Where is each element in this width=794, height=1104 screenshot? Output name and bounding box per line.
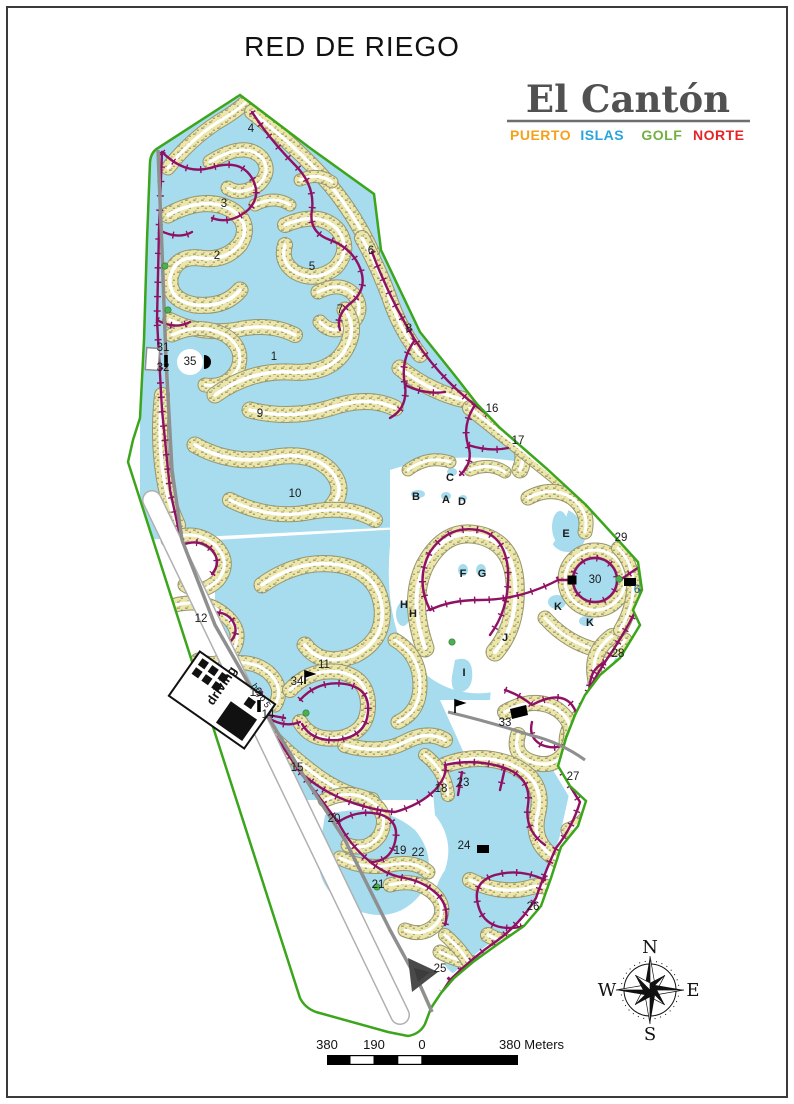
logo-subwords: PUERTOISLASGOLFNORTE <box>510 127 745 143</box>
map-label-F: F <box>460 568 467 580</box>
map-label-3: 3 <box>221 198 227 210</box>
green-dot-marker <box>616 576 622 582</box>
map-label-10: 10 <box>289 488 302 500</box>
map-label-4: 4 <box>248 123 255 135</box>
map-label-27: 27 <box>567 771 580 783</box>
map-label-9: 9 <box>257 408 263 420</box>
map-label-26: 26 <box>527 901 540 913</box>
scale-190: 190 <box>363 1037 385 1052</box>
map-label-12: 12 <box>195 613 208 625</box>
map-label-K: K <box>586 617 594 629</box>
compass-n: N <box>642 937 658 958</box>
map-label-25: 25 <box>434 963 447 975</box>
logo-name: El Cantón <box>526 77 730 121</box>
map-label-24: 24 <box>458 840 471 852</box>
map-label-21: 21 <box>372 879 385 891</box>
map-label-29: 29 <box>615 532 628 544</box>
map-label-31: 31 <box>157 342 170 354</box>
map-label-I: I <box>462 667 465 679</box>
map-label-19: 19 <box>394 845 407 857</box>
scale-380-right: 380 Meters <box>499 1037 565 1052</box>
map-label-8: 8 <box>406 323 412 335</box>
map-label-A: A <box>442 494 450 506</box>
map-label-23: 23 <box>457 777 470 789</box>
green-dot-marker <box>165 307 171 313</box>
green-dot-marker <box>162 263 168 269</box>
logo-word-puerto: PUERTO <box>510 127 571 143</box>
compass-w: W <box>598 980 617 1001</box>
map-label-18: 18 <box>435 783 448 795</box>
map-label-33: 33 <box>499 717 512 729</box>
map-label-B: B <box>412 491 420 503</box>
map-label-K: K <box>554 601 562 613</box>
irrigation-map: 1234567891011121314151617181920212223242… <box>0 0 794 1104</box>
compass-rose: N E S W <box>598 937 700 1045</box>
map-label-17: 17 <box>512 435 525 447</box>
scale-380-left: 380 <box>316 1037 338 1052</box>
map-label-H: H <box>400 599 408 611</box>
logo: El Cantón PUERTOISLASGOLFNORTE <box>507 77 750 143</box>
map-label-30: 30 <box>589 574 602 586</box>
map-label-J: J <box>502 632 508 644</box>
map-label-6: 6 <box>634 584 640 596</box>
pump-station-icon <box>477 845 489 853</box>
map-label-G: G <box>478 568 487 580</box>
map-label-11: 11 <box>318 659 330 671</box>
map-label-35: 35 <box>184 356 197 368</box>
map-label-22: 22 <box>412 847 425 859</box>
green-dot-marker <box>449 639 455 645</box>
map-label-20: 20 <box>328 813 341 825</box>
page-title: RED DE RIEGO <box>244 31 460 62</box>
map-label-6: 6 <box>368 245 374 257</box>
map-label-1: 1 <box>271 351 277 363</box>
map-label-D: D <box>458 496 466 508</box>
logo-word-islas: ISLAS <box>580 127 624 143</box>
map-label-2: 2 <box>214 250 220 262</box>
compass-s: S <box>644 1024 656 1045</box>
map-label-34: 34 <box>291 676 304 688</box>
green-dot-marker <box>303 710 309 716</box>
map-label-15: 15 <box>291 762 304 774</box>
map-label-H: H <box>409 608 417 620</box>
map-label-7: 7 <box>337 304 343 316</box>
map-label-28: 28 <box>612 648 625 660</box>
map-page: { "title": "RED DE RIEGO", "logo": { "na… <box>0 0 794 1104</box>
map-art <box>140 95 643 1040</box>
map-label-32: 32 <box>157 362 170 374</box>
map-label-C: C <box>446 472 454 484</box>
logo-word-golf: GOLF <box>641 127 682 143</box>
map-label-E: E <box>562 528 569 540</box>
scale-0: 0 <box>418 1037 425 1052</box>
compass-e: E <box>686 980 699 1001</box>
logo-word-norte: NORTE <box>693 127 745 143</box>
scale-bar: 380 190 0 380 Meters <box>316 1037 564 1065</box>
pump-station-icon <box>568 576 577 585</box>
map-label-14: 14 <box>262 709 275 721</box>
map-label-16: 16 <box>486 403 499 415</box>
map-label-5: 5 <box>309 261 315 273</box>
